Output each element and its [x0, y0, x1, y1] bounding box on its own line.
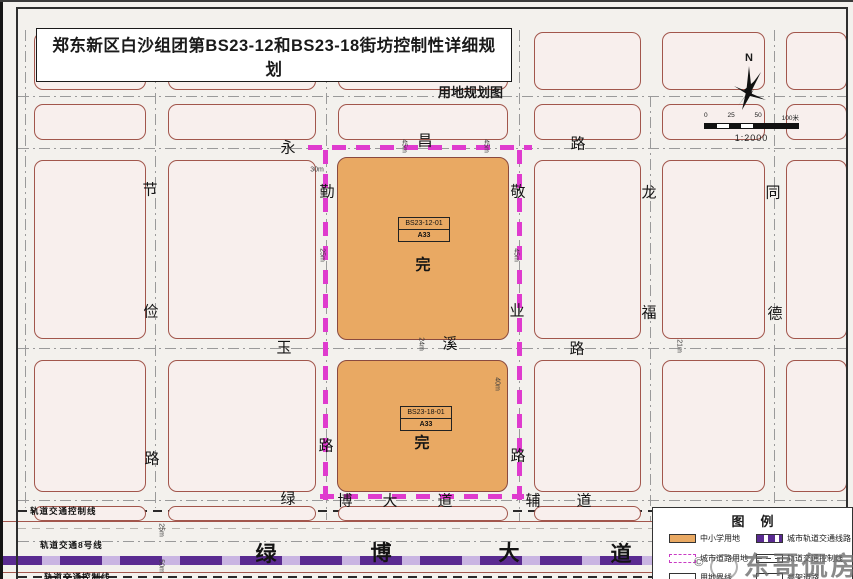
watermark: © 东哥侃房	[694, 546, 853, 579]
north-label: N	[728, 52, 770, 64]
parcel-mark-2: 完	[414, 432, 429, 453]
scale-ratio: 1:2000	[704, 133, 799, 143]
city-block	[534, 32, 641, 90]
road-name-char: 路	[570, 133, 585, 154]
copyright-symbol: ©	[694, 554, 704, 569]
road-name-char: 溪	[442, 333, 457, 354]
road-name-char: 俭	[143, 301, 158, 322]
map-title: 郑东新区白沙组团第BS23-12和BS23-18街坊控制性详细规划	[45, 32, 503, 80]
scale-tick: 0	[704, 112, 708, 122]
parcel-code-box-2: BS23-18-01 A33	[400, 406, 452, 431]
dimension-label: 21m	[676, 339, 683, 353]
road-name-char: 同	[765, 182, 780, 203]
road-name-char: 业	[509, 300, 524, 321]
page-edge	[0, 0, 853, 2]
city-block	[786, 32, 847, 90]
parcel-bs23-12-01	[337, 157, 509, 340]
scale-bar-segments	[704, 123, 799, 129]
rail-control-note-top: 轨道交通控制线	[30, 505, 97, 517]
legend-swatch-urban-rail-line	[756, 534, 783, 543]
scale-bar: 0 25 50 100米 1:2000	[704, 112, 799, 143]
rail-control-note-bottom: 轨道交通控制线	[44, 571, 111, 579]
dimension-label: 40m	[494, 377, 501, 391]
city-block	[34, 104, 146, 140]
road-centerline	[155, 30, 156, 508]
compass-rose: N	[728, 52, 770, 121]
legend-swatch-urban-road-land	[669, 554, 696, 563]
road-name-char: 道	[611, 538, 632, 568]
road-centerline	[18, 500, 847, 501]
road-name-char: 路	[318, 435, 333, 456]
dimension-label: 24m	[418, 337, 425, 351]
dimension-label: 45m	[401, 139, 408, 153]
land-use-code: A33	[401, 418, 451, 430]
road-name-char: 大	[382, 490, 397, 511]
dimension-label: 50m	[158, 559, 165, 573]
compass-rose-icon	[728, 64, 770, 116]
planning-map-page: BS23-12-01 A33 完 BS23-18-01 A33 完 永昌路玉溪路…	[0, 0, 853, 579]
road-centerline	[774, 30, 775, 522]
road-name-char: 永	[280, 137, 295, 158]
city-block	[34, 360, 146, 492]
parcel-code-box-1: BS23-12-01 A33	[398, 217, 450, 242]
scale-tick: 100米	[782, 112, 799, 122]
city-block	[786, 160, 847, 339]
road-name-char: 绿	[280, 488, 295, 509]
parcel-code: BS23-18-01	[401, 407, 451, 418]
land-use-code: A33	[399, 229, 449, 241]
watermark-text: 东哥侃房	[744, 546, 853, 579]
legend-title: 图例	[653, 511, 852, 530]
road-name-char: 节	[142, 179, 157, 200]
scale-tick: 25	[727, 112, 734, 122]
dimension-label: 30m	[310, 167, 324, 174]
legend-label: 中小学用地	[700, 533, 740, 544]
legend-swatch-land-boundary	[669, 573, 696, 579]
dimension-label: 25m	[158, 523, 165, 537]
page-edge	[0, 0, 3, 579]
road-name-char: 福	[641, 302, 656, 323]
map-subtitle: 用地规划图	[45, 82, 503, 101]
city-block	[662, 360, 765, 492]
city-block	[168, 360, 316, 492]
city-block	[34, 160, 146, 339]
road-name-char: 博	[337, 490, 352, 511]
road-name-char: 玉	[276, 337, 291, 358]
road-centerline	[18, 348, 847, 349]
road-name-char: 博	[371, 537, 392, 567]
title-block: 郑东新区白沙组团第BS23-12和BS23-18街坊控制性详细规划 用地规划图	[36, 28, 512, 82]
watermark-logo-icon	[710, 554, 738, 579]
city-block	[534, 104, 641, 140]
road-name-char: 辅	[525, 490, 540, 511]
city-block	[338, 506, 508, 521]
road-name-char: 龙	[641, 182, 656, 203]
city-block	[168, 160, 316, 339]
city-block	[534, 360, 641, 492]
city-block	[786, 360, 847, 492]
road-name-char: 德	[767, 303, 782, 324]
dimension-label: 25m	[319, 248, 326, 262]
parcel-mark-1: 完	[415, 254, 430, 275]
road-name-char: 路	[144, 448, 159, 469]
dimension-label: 45m	[513, 248, 520, 262]
legend-swatch-school-land	[669, 534, 696, 543]
parcel-code: BS23-12-01	[399, 218, 449, 229]
road-name-char: 道	[437, 490, 452, 511]
road-name-char: 昌	[417, 130, 432, 151]
road-name-char: 敬	[510, 181, 525, 202]
city-block	[168, 104, 316, 140]
road-name-char: 路	[569, 338, 584, 359]
road-name-char: 路	[510, 445, 525, 466]
road-name-char: 绿	[256, 538, 277, 568]
scale-tick: 50	[755, 112, 762, 122]
road-centerline	[25, 30, 26, 508]
city-block	[534, 160, 641, 339]
road-name-char: 大	[499, 537, 520, 567]
dimension-label: 45m	[483, 139, 490, 153]
road-name-char: 勤	[319, 181, 334, 202]
rail-line8-note: 轨道交通8号线	[40, 539, 103, 551]
city-block	[662, 160, 765, 339]
road-name-char: 道	[576, 490, 591, 511]
legend-label: 城市轨道交通线路	[787, 533, 851, 544]
